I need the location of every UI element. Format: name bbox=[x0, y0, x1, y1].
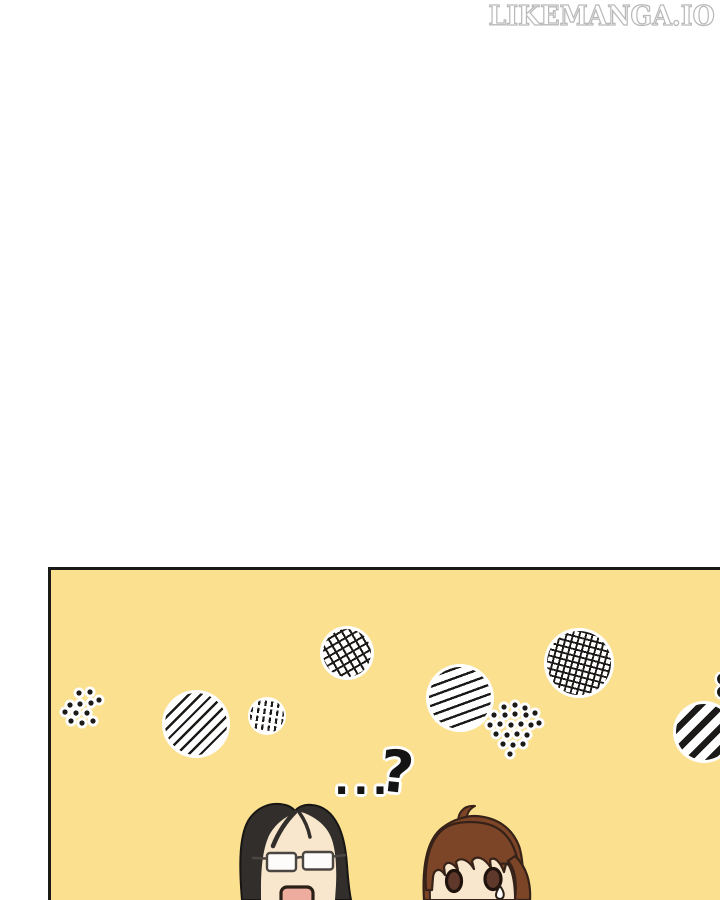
partial-question-mark bbox=[712, 672, 720, 702]
site-watermark: LIKEMANGA.IO bbox=[489, 2, 715, 32]
dot-cluster-small bbox=[55, 680, 115, 735]
left-eye bbox=[447, 871, 462, 892]
dash-circle bbox=[248, 697, 286, 735]
long-black-hair-glasses-character bbox=[226, 793, 366, 900]
diagonal-hatch-circle bbox=[162, 690, 230, 758]
speech-question-mark: ? bbox=[377, 741, 417, 802]
brown-hair-character bbox=[403, 798, 538, 900]
open-mouth bbox=[281, 887, 313, 900]
dot-cluster-large bbox=[482, 700, 546, 762]
comic-page: LIKEMANGA.IO ... ? bbox=[0, 0, 720, 900]
comic-panel bbox=[48, 567, 720, 900]
grid-hatch-circle bbox=[544, 628, 614, 698]
crosshatch-circle bbox=[320, 626, 374, 680]
